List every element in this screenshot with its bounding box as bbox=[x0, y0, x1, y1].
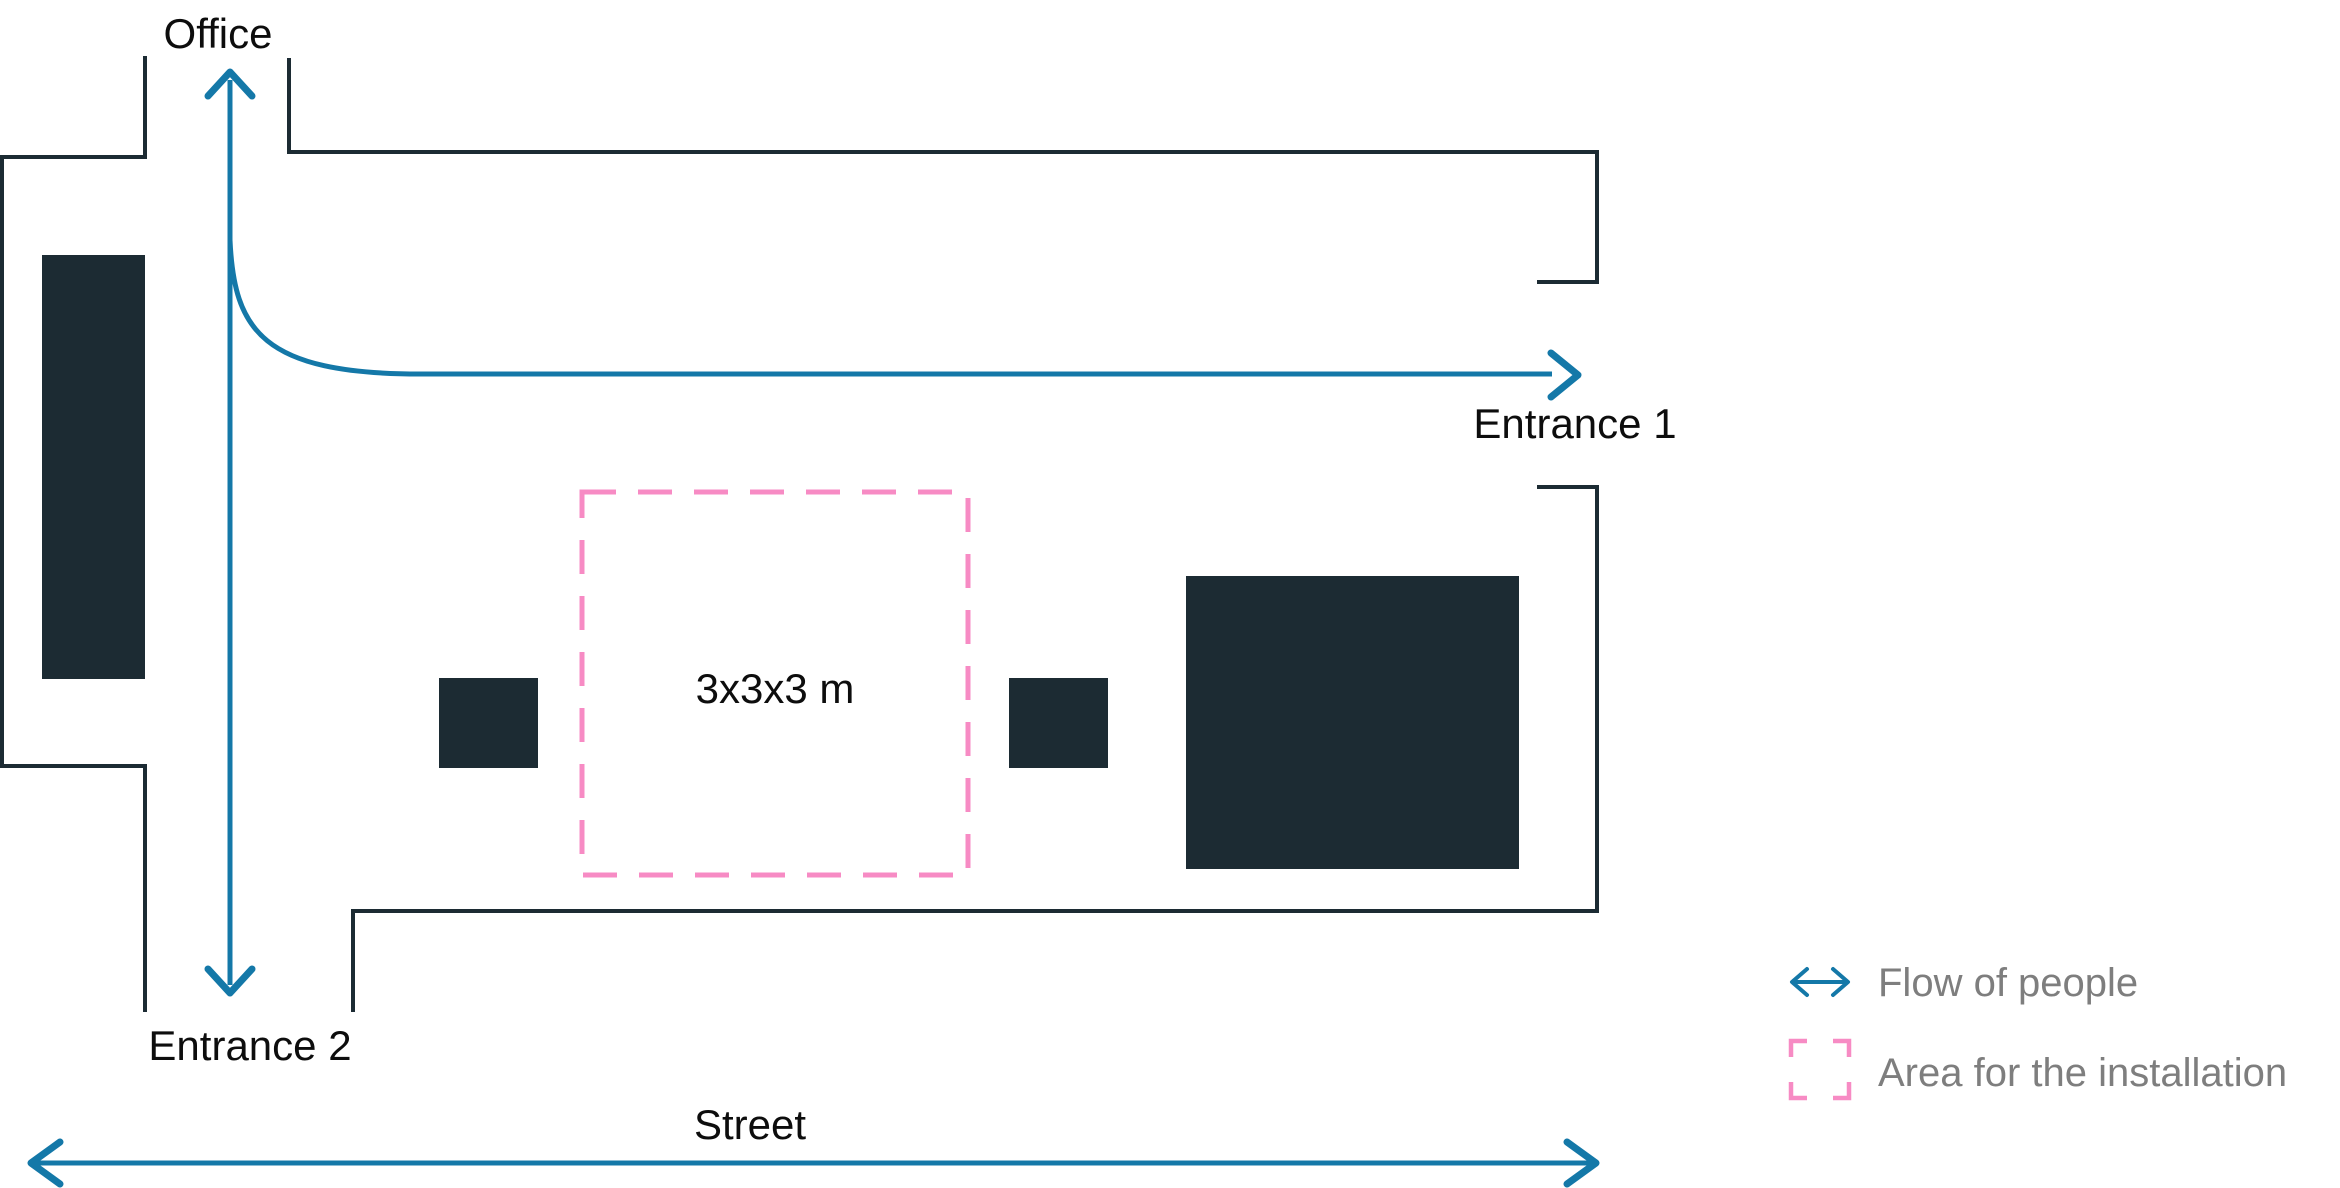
legend: Flow of people Area for the installation bbox=[1791, 961, 2287, 1098]
flow-arrow-to-entrance-1 bbox=[230, 240, 1578, 397]
legend-flow-label: Flow of people bbox=[1878, 961, 2138, 1005]
dashed-square-icon bbox=[1791, 1041, 1849, 1098]
obstacle-small-right bbox=[1009, 678, 1108, 768]
obstacle-small-left bbox=[439, 678, 538, 768]
installation-size-label: 3x3x3 m bbox=[696, 665, 855, 712]
entrance-2-label: Entrance 2 bbox=[148, 1022, 351, 1069]
legend-dash-corner-tl bbox=[1791, 1041, 1807, 1057]
obstacle-large-right bbox=[1186, 576, 1519, 869]
obstacle-tall-left bbox=[42, 255, 145, 679]
flow-arrow-curve-shaft bbox=[230, 240, 1552, 374]
legend-dash-corner-tr bbox=[1833, 1041, 1849, 1057]
legend-area-item: Area for the installation bbox=[1791, 1041, 2287, 1098]
legend-area-label: Area for the installation bbox=[1878, 1051, 2287, 1095]
floor-plan-page: Office Entrance 1 Entrance 2 3x3x3 m Str… bbox=[0, 0, 2340, 1188]
wall-top-right-outline bbox=[289, 58, 1597, 282]
entrance-1-label: Entrance 1 bbox=[1473, 400, 1676, 447]
office-label: Office bbox=[164, 10, 273, 57]
street-arrow bbox=[31, 1142, 1596, 1184]
floor-plan-diagram: Office Entrance 1 Entrance 2 3x3x3 m Str… bbox=[0, 0, 2340, 1188]
flow-arrow-vertical bbox=[208, 72, 252, 993]
legend-flow-item: Flow of people bbox=[1792, 961, 2138, 1005]
arrow-right-icon bbox=[1551, 353, 1578, 397]
street-label: Street bbox=[694, 1101, 806, 1148]
legend-dash-corner-br bbox=[1833, 1082, 1849, 1098]
double-arrow-icon bbox=[1792, 969, 1848, 995]
legend-dash-corner-bl bbox=[1791, 1082, 1807, 1098]
